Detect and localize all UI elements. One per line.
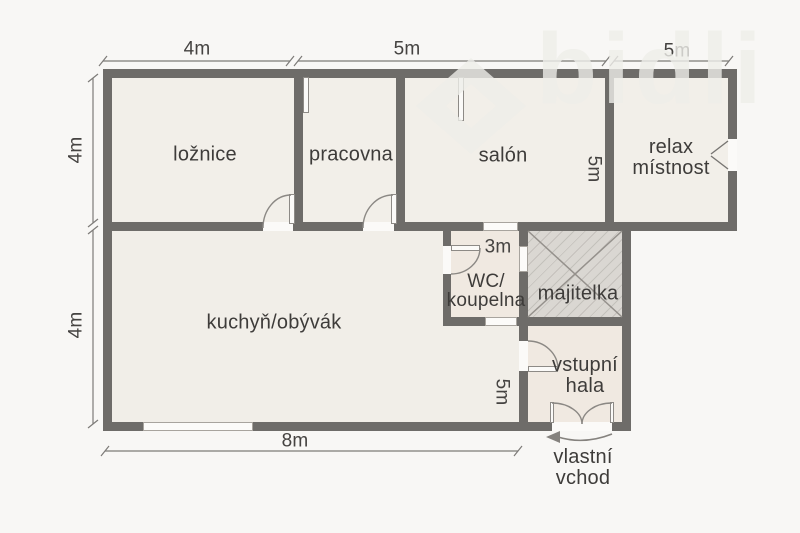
hala-door-opening: [519, 341, 528, 371]
pracovna-door-leaf: [391, 194, 397, 224]
wall-left: [103, 69, 112, 431]
room-label-wc-line1: WC/: [447, 272, 526, 291]
entrance-label-line2: vchod: [553, 468, 612, 489]
room-label-hala: vstupní hala: [552, 355, 618, 397]
wall-pracovna-salon: [396, 78, 405, 222]
entrance-door-opening: [552, 422, 612, 431]
wall-wc-majitelka-bottom: [443, 317, 631, 326]
room-label-hala-line2: hala: [552, 376, 618, 397]
room-kuchyn-lower: [443, 326, 519, 422]
dim-bottom: 8m: [282, 431, 309, 452]
wall-middle: [103, 222, 737, 231]
pracovna-door-opening: [363, 222, 394, 231]
entrance-label-line1: vlastní: [553, 447, 612, 468]
wall-right-lower: [622, 222, 631, 431]
room-label-relax: relax místnost: [632, 137, 709, 179]
room-label-salon: salón: [479, 146, 528, 167]
room-label-kuchyn: kuchyň/obývák: [207, 313, 342, 334]
dim-top-1: 4m: [184, 39, 211, 60]
floor-plan: ložnice pracovna salón relax místnost ku…: [0, 0, 800, 533]
wall-loznice-pracovna: [294, 78, 303, 222]
entrance-leaf-left: [550, 402, 554, 423]
room-label-majitelka: majitelka: [538, 284, 619, 305]
salon-window-leaf: [458, 77, 464, 121]
relax-door-opening: [728, 139, 737, 171]
loznice-door-leaf: [289, 194, 295, 224]
wall-salon-relax: [605, 78, 614, 222]
wc-bottom-window: [485, 317, 517, 326]
wc-door-opening: [443, 246, 451, 274]
dim-top-3: 5m: [664, 41, 691, 62]
room-label-hala-line1: vstupní: [552, 355, 618, 376]
kuchyn-window: [143, 422, 253, 431]
entrance-label: vlastní vchod: [553, 447, 612, 489]
dim-left-2: 4m: [66, 312, 87, 339]
room-label-loznice: ložnice: [173, 145, 237, 166]
room-label-pracovna: pracovna: [309, 145, 393, 166]
pracovna-window-leaf: [303, 77, 309, 113]
entrance-swing-arrow: [546, 431, 612, 443]
room-label-wc-line2: koupelna: [447, 291, 526, 310]
entrance-leaf-right: [610, 402, 614, 423]
salon-wc-window: [483, 222, 518, 231]
wc-door-leaf: [451, 245, 480, 251]
dim-wc-width: 3m: [485, 237, 512, 258]
room-label-wc: WC/ koupelna: [447, 272, 526, 310]
room-label-relax-line2: místnost: [632, 158, 709, 179]
wall-top: [103, 69, 737, 78]
room-label-relax-line1: relax: [632, 137, 709, 158]
dim-left-1: 4m: [66, 137, 87, 164]
dim-top-2: 5m: [394, 39, 421, 60]
wc-majitelka-window: [519, 246, 528, 272]
dim-salon-depth: 5m: [584, 156, 605, 183]
dim-hala-depth: 5m: [492, 379, 513, 406]
